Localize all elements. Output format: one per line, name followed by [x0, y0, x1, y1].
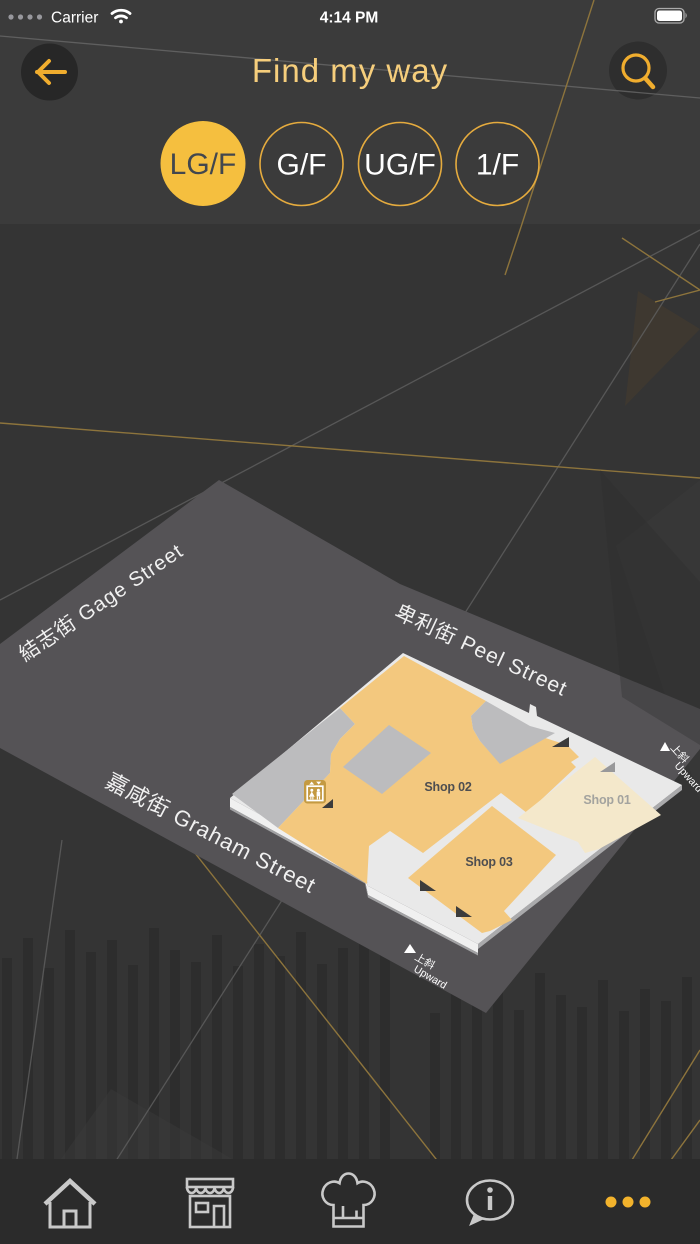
- svg-text:Find my way: Find my way: [252, 52, 448, 89]
- svg-text:Shop 03: Shop 03: [465, 855, 512, 869]
- svg-text:Shop 01: Shop 01: [583, 793, 630, 807]
- svg-text:G/F: G/F: [277, 149, 327, 182]
- svg-text:Carrier: Carrier: [51, 10, 98, 27]
- svg-text:4:14 PM: 4:14 PM: [320, 10, 379, 27]
- svg-text:LG/F: LG/F: [170, 148, 237, 181]
- svg-text:1/F: 1/F: [476, 149, 519, 182]
- svg-text:Shop 02: Shop 02: [424, 780, 471, 794]
- svg-text:UG/F: UG/F: [364, 149, 436, 182]
